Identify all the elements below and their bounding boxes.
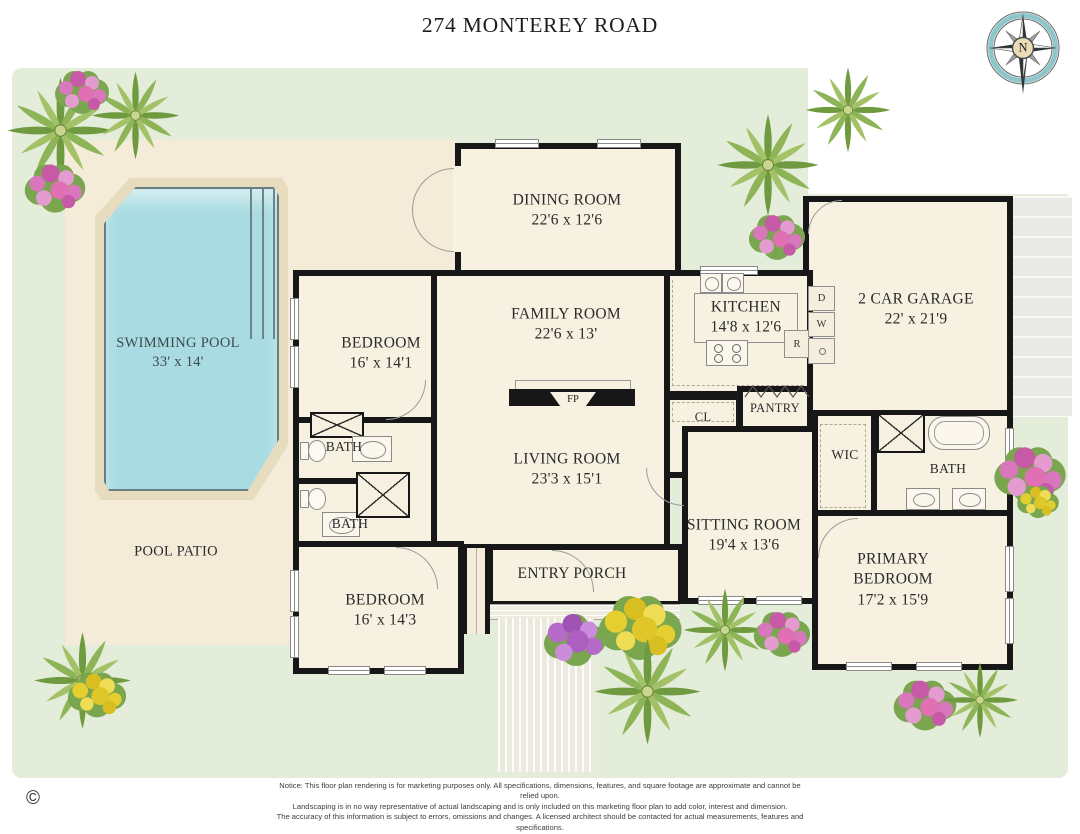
room-dims: 23'3 x 15'1 — [513, 470, 620, 490]
label-bath-upper: BATH — [326, 438, 362, 456]
notice-text: This floor plan rendering is for marketi… — [305, 781, 801, 800]
room-dims: 22'6 x 12'6 — [513, 211, 622, 231]
label-pool: SWIMMING POOL 33' x 14' — [116, 334, 240, 372]
window — [756, 596, 802, 605]
door-opening — [453, 166, 463, 252]
label-entry-porch: ENTRY PORCH — [517, 564, 626, 584]
label-bedroom-upper: BEDROOM 16' x 14'1 — [341, 334, 421, 375]
window — [290, 346, 299, 388]
window — [1005, 428, 1014, 470]
room-name: BEDROOM — [341, 334, 421, 354]
front-walkway — [498, 618, 594, 772]
label-bedroom-lower: BEDROOM 16' x 14'3 — [345, 591, 425, 632]
notice-line: Landscaping is in no way representative … — [270, 802, 810, 812]
room-dims: 16' x 14'3 — [345, 611, 425, 631]
copyright-symbol: © — [26, 788, 40, 810]
label-primary: PRIMARY BEDROOM 17'2 x 15'9 — [829, 549, 957, 610]
notice-line: The accuracy of this information is subj… — [270, 812, 810, 833]
room-name: SITTING ROOM — [687, 516, 801, 536]
room-dims: 22' x 21'9 — [858, 310, 974, 330]
stove-icon — [706, 340, 748, 366]
burner-icon — [732, 344, 741, 353]
room-dims: 17'2 x 15'9 — [829, 590, 957, 610]
entry-side-corridor — [462, 548, 490, 634]
label-wic: WIC — [831, 446, 858, 464]
pool-step-line — [262, 189, 264, 339]
pool-step-line — [273, 189, 275, 339]
pool-name: SWIMMING POOL — [116, 334, 240, 353]
notice-line: Notice: This floor plan rendering is for… — [270, 781, 810, 802]
window — [846, 662, 892, 671]
room-dims: 19'4 x 13'6 — [687, 536, 801, 556]
label-pantry: PANTRY — [750, 400, 800, 417]
window — [328, 666, 370, 675]
utility-sink-icon — [808, 338, 835, 364]
driveway — [1013, 196, 1072, 417]
label-bath-primary: BATH — [930, 460, 966, 478]
sink-icon — [952, 488, 986, 510]
toilet-icon — [300, 488, 324, 508]
compass-north-label: N — [1018, 41, 1027, 56]
room-name: 2 CAR GARAGE — [858, 290, 974, 310]
room-name: FAMILY ROOM — [511, 305, 621, 325]
label-family: FAMILY ROOM 22'6 x 13' — [511, 305, 621, 346]
window — [384, 666, 426, 675]
room-name: BEDROOM — [345, 591, 425, 611]
window — [495, 139, 539, 148]
window — [290, 616, 299, 658]
notice-label: Notice: — [279, 781, 303, 790]
label-dining: DINING ROOM 22'6 x 12'6 — [513, 191, 622, 232]
shower-icon — [356, 472, 410, 518]
window — [916, 662, 962, 671]
refrigerator: R — [784, 330, 810, 358]
burner-icon — [714, 354, 723, 363]
notice-block: Notice: This floor plan rendering is for… — [270, 781, 810, 833]
window — [597, 139, 641, 148]
label-kitchen: KITCHEN 14'8 x 12'6 — [711, 298, 782, 339]
label-closet: CL — [695, 409, 712, 426]
pool-dims: 33' x 14' — [116, 353, 240, 372]
dryer: D — [808, 286, 835, 311]
wic-rod-dashed — [820, 424, 866, 508]
room-name: KITCHEN — [711, 298, 782, 318]
bathtub-icon — [928, 416, 990, 450]
label-pool-patio: POOL PATIO — [134, 542, 218, 561]
label-garage: 2 CAR GARAGE 22' x 21'9 — [858, 290, 974, 331]
kitchen-sink-icon — [722, 273, 744, 293]
burner-icon — [732, 354, 741, 363]
page-title: 274 MONTEREY ROAD — [0, 13, 1080, 38]
room-name: DINING ROOM — [513, 191, 622, 211]
room-dims: 16' x 14'1 — [341, 354, 421, 374]
window — [1005, 546, 1014, 592]
window — [290, 570, 299, 612]
kitchen-sink-icon — [700, 273, 722, 293]
pool-step-line — [250, 189, 252, 339]
washer: W — [808, 312, 835, 337]
label-living: LIVING ROOM 23'3 x 15'1 — [513, 450, 620, 491]
pantry-folding-door-icon — [744, 384, 810, 399]
room-dims: 14'8 x 12'6 — [711, 318, 782, 338]
label-bath-lower: BATH — [332, 515, 368, 533]
floor-plan-page: 274 MONTEREY ROAD — [0, 0, 1080, 834]
room-name: PRIMARY BEDROOM — [829, 549, 957, 590]
burner-icon — [714, 344, 723, 353]
label-sitting: SITTING ROOM 19'4 x 13'6 — [687, 516, 801, 557]
window — [1005, 598, 1014, 644]
shower-icon — [877, 413, 925, 453]
window — [290, 298, 299, 340]
window — [698, 596, 744, 605]
closet-shelf-icon — [310, 412, 364, 438]
room-name: LIVING ROOM — [513, 450, 620, 470]
sink-icon — [906, 488, 940, 510]
room-dims: 22'6 x 13' — [511, 325, 621, 345]
toilet-icon — [300, 440, 324, 460]
